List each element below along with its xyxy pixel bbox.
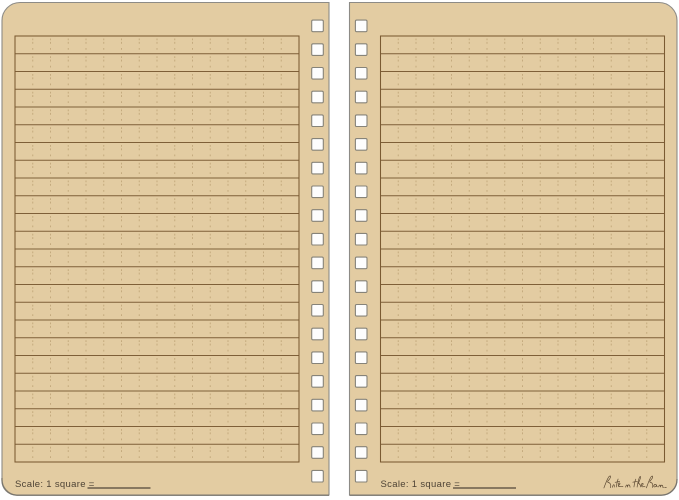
svg-text:Scale: 1 square =: Scale: 1 square = xyxy=(381,479,461,490)
svg-text:Scale: 1 square =: Scale: 1 square = xyxy=(15,479,95,490)
